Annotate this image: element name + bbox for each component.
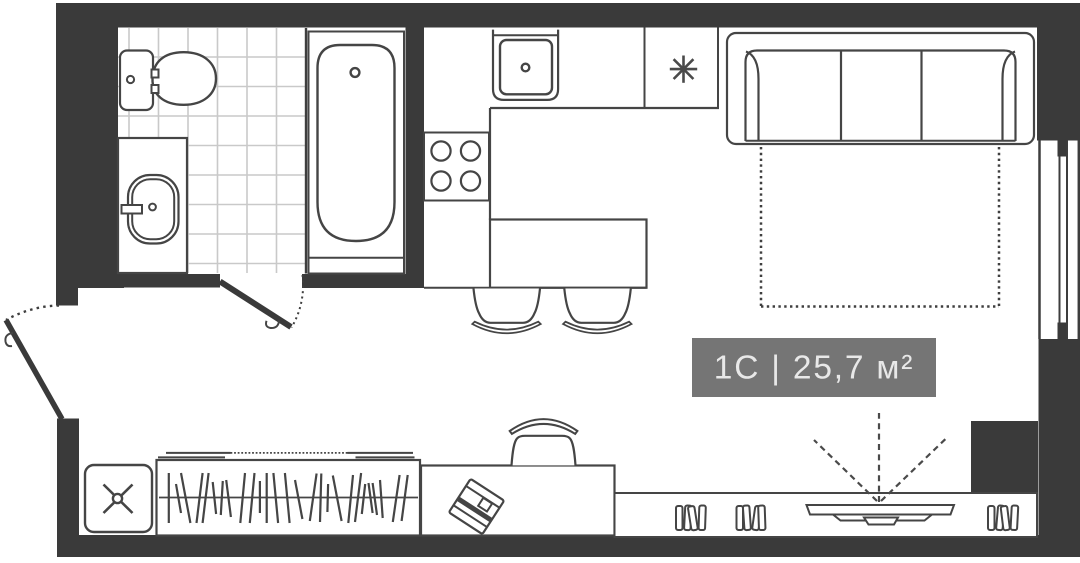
svg-text:1C | 25,7 м²: 1C | 25,7 м² (714, 350, 914, 387)
